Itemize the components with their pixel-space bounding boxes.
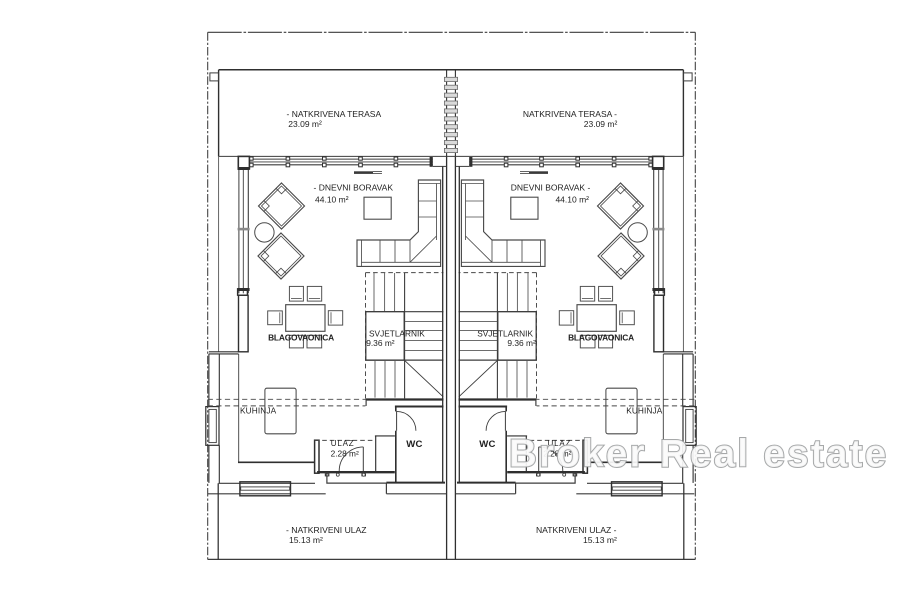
- svg-text:23.09 m²: 23.09 m²: [584, 119, 618, 129]
- svg-text:Broker Real estate: Broker Real estate: [509, 433, 889, 476]
- svg-text:44.10 m²: 44.10 m²: [315, 194, 349, 204]
- svg-text:44.10 m²: 44.10 m²: [555, 194, 589, 204]
- svg-text:- NATKRIVENA TERASA: - NATKRIVENA TERASA: [287, 109, 382, 119]
- svg-text:DNEVNI BORAVAK -: DNEVNI BORAVAK -: [511, 183, 591, 193]
- svg-text:WC: WC: [406, 439, 422, 450]
- svg-text:15.13 m²: 15.13 m²: [289, 535, 323, 545]
- svg-text:ULAZ: ULAZ: [331, 439, 355, 448]
- svg-text:9.36 m²: 9.36 m²: [507, 338, 536, 348]
- svg-text:2.28 m²: 2.28 m²: [331, 448, 359, 458]
- svg-text:- DNEVNI BORAVAK: - DNEVNI BORAVAK: [314, 183, 394, 193]
- svg-text:9.36 m²: 9.36 m²: [366, 338, 395, 348]
- svg-text:KUHINJA: KUHINJA: [240, 406, 277, 416]
- svg-text:15.13 m²: 15.13 m²: [583, 535, 617, 545]
- svg-text:BLAGOVAONICA: BLAGOVAONICA: [568, 332, 634, 342]
- svg-text:KUHINJA: KUHINJA: [626, 406, 663, 416]
- svg-text:BLAGOVAONICA: BLAGOVAONICA: [268, 332, 334, 342]
- svg-text:23.09 m²: 23.09 m²: [288, 119, 322, 129]
- svg-text:- NATKRIVENI ULAZ: - NATKRIVENI ULAZ: [286, 525, 367, 535]
- svg-text:WC: WC: [479, 439, 495, 450]
- svg-text:NATKRIVENA TERASA -: NATKRIVENA TERASA -: [523, 109, 617, 119]
- svg-text:NATKRIVENI ULAZ -: NATKRIVENI ULAZ -: [536, 525, 617, 535]
